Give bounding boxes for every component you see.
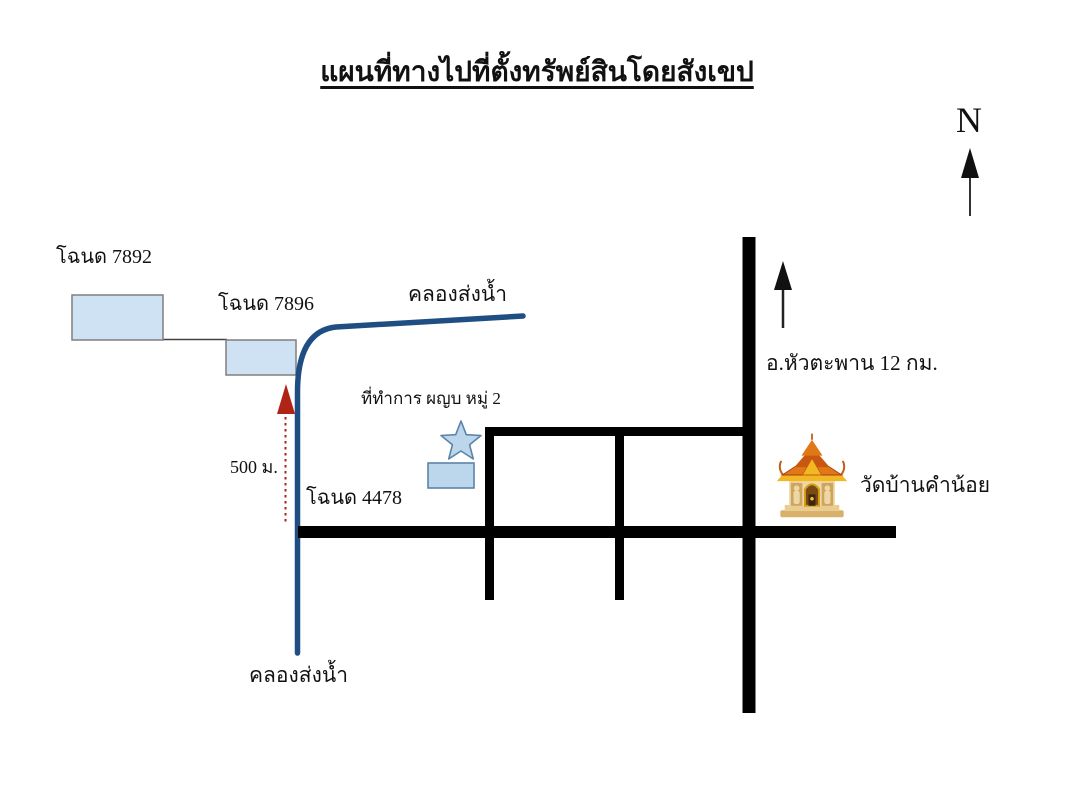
headman-office-label: ที่ทำการ ผญบ หมู่ 2 [361,389,501,409]
road-side-vertical-1 [485,427,494,600]
distance-arrow-icon [277,384,295,523]
map-drawing-layer [0,0,1089,800]
canal-lower-label: คลองส่งน้ำ [249,663,348,687]
parcel-7892-shape [72,295,163,340]
distance-500m-label: 500 ม. [230,457,278,478]
canal-upper-label: คลองส่งน้ำ [408,282,507,306]
parcel-7896-shape [226,340,296,375]
headman-office-building-shape [428,463,474,488]
district-distance-label: อ.หัวตะพาน 12 กม. [766,351,938,375]
direction-arrow-icon [774,261,792,328]
map-canvas: แผนที่ทางไปที่ตั้งทรัพย์สินโดยสังเขป N โ… [0,0,1089,800]
temple-icon [777,434,847,518]
temple-name-label: วัดบ้านคำน้อย [860,473,990,497]
road-main-horizontal [298,526,896,538]
north-arrow-icon [961,148,979,216]
road-main-vertical [743,237,756,713]
deed-7896-label: โฉนด 7896 [218,293,314,316]
road-side-vertical-2 [615,427,624,600]
map-title: แผนที่ทางไปที่ตั้งทรัพย์สินโดยสังเขป [320,50,754,94]
north-label: N [956,100,982,141]
deed-7892-label: โฉนด 7892 [56,246,152,269]
deed-4478-label: โฉนด 4478 [306,487,402,510]
star-marker-icon [441,421,481,459]
